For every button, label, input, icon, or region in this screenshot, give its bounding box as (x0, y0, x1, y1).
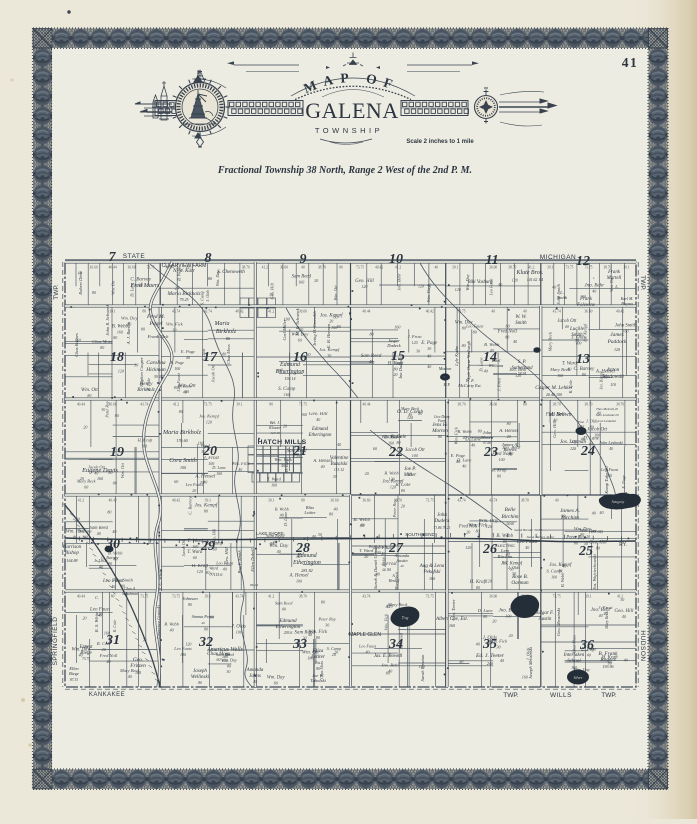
svg-text:LAKE SHORE: LAKE SHORE (256, 531, 284, 536)
svg-text:79.25: 79.25 (180, 297, 189, 302)
svg-text:T. Ward: T. Ward (267, 477, 281, 482)
svg-text:40.44: 40.44 (109, 266, 117, 270)
svg-text:20: 20 (283, 423, 287, 428)
svg-text:Birchim: Birchim (561, 515, 579, 521)
svg-text:39.1: 39.1 (617, 499, 623, 503)
svg-text:38.70: 38.70 (242, 266, 250, 270)
svg-text:James A.: James A. (560, 508, 580, 514)
svg-text:80: 80 (329, 511, 333, 516)
svg-text:36.60: 36.60 (299, 310, 307, 314)
svg-text:A.: A. (391, 574, 395, 578)
svg-text:20: 20 (83, 425, 87, 430)
svg-text:Fractional Township 38 North,: Fractional Township 38 North, Range 2 We… (217, 165, 472, 176)
svg-text:60: 60 (217, 657, 221, 662)
svg-text:39.1: 39.1 (205, 595, 211, 599)
svg-text:Birchim: Birchim (498, 554, 513, 559)
svg-text:W. W.: W. W. (515, 315, 526, 320)
svg-text:100: 100 (505, 613, 511, 618)
svg-text:40: 40 (307, 352, 311, 357)
svg-text:Lawrence Gorecki: Lawrence Gorecki (156, 604, 161, 639)
svg-text:John Smith: John Smith (113, 578, 134, 583)
svg-text:35: 35 (482, 637, 497, 652)
svg-text:160: 160 (429, 576, 435, 581)
svg-text:80: 80 (274, 681, 278, 686)
svg-text:40: 40 (434, 266, 438, 270)
svg-text:40: 40 (600, 510, 604, 515)
svg-text:80: 80 (476, 585, 480, 590)
svg-text:40.44: 40.44 (362, 310, 370, 314)
svg-text:A. J. Barnes: A. J. Barnes (126, 322, 131, 346)
svg-text:40: 40 (76, 517, 80, 522)
svg-text:70: 70 (575, 338, 579, 343)
svg-text:120: 120 (418, 283, 424, 288)
svg-text:B. Webb: B. Webb (560, 572, 565, 587)
svg-text:39.1: 39.1 (623, 266, 629, 270)
svg-text:20: 20 (394, 372, 398, 377)
svg-text:38.70: 38.70 (318, 266, 326, 270)
svg-text:Sarah & Daniel Grimes: Sarah & Daniel Grimes (373, 545, 378, 589)
svg-text:Frank: Frank (607, 270, 621, 275)
svg-text:120: 120 (570, 446, 576, 451)
svg-text:39.1: 39.1 (547, 266, 553, 270)
svg-text:40: 40 (107, 659, 111, 664)
svg-text:20: 20 (401, 504, 405, 509)
svg-text:20: 20 (99, 564, 103, 569)
svg-text:9: 9 (300, 252, 307, 267)
svg-text:120: 120 (185, 642, 191, 647)
svg-text:18: 18 (110, 350, 124, 365)
svg-text:Austin: Austin (395, 558, 408, 563)
svg-text:36.60: 36.60 (90, 266, 98, 270)
svg-text:Joseph: Joseph (193, 669, 207, 674)
svg-text:240: 240 (487, 661, 494, 666)
svg-text:73.75: 73.75 (457, 310, 465, 314)
svg-text:100: 100 (236, 630, 242, 635)
svg-text:41.2: 41.2 (78, 499, 84, 503)
svg-text:40: 40 (562, 564, 566, 569)
svg-text:20: 20 (175, 286, 179, 291)
svg-text:Oarman: Oarman (511, 580, 529, 586)
svg-text:73.75: 73.75 (553, 595, 561, 599)
svg-text:TWP.: TWP. (53, 284, 60, 300)
svg-text:S. P.: S. P. (518, 360, 526, 365)
svg-text:73.75: 73.75 (299, 403, 307, 407)
svg-text:80: 80 (87, 393, 91, 398)
svg-text:293.6: 293.6 (284, 631, 293, 635)
svg-text:C. Barney: C. Barney (101, 555, 118, 560)
svg-text:R. S. White: R. S. White (94, 612, 99, 633)
svg-text:Wm. Day: Wm. Day (426, 286, 431, 303)
svg-text:CLEARVIEW FARM: CLEARVIEW FARM (162, 263, 207, 269)
svg-text:39.1: 39.1 (236, 403, 242, 407)
svg-text:B. Webb: B. Webb (384, 471, 399, 476)
svg-text:176.60: 176.60 (176, 438, 188, 443)
svg-text:Geo. Mrozinski: Geo. Mrozinski (556, 607, 561, 636)
svg-text:38.70: 38.70 (603, 266, 611, 270)
svg-text:117: 117 (502, 561, 507, 565)
svg-text:Robert Dietz: Robert Dietz (78, 271, 83, 296)
svg-text:80: 80 (143, 443, 147, 448)
svg-text:80: 80 (107, 510, 111, 515)
svg-text:41.2: 41.2 (528, 266, 534, 270)
svg-text:80: 80 (321, 600, 325, 605)
svg-text:41.2: 41.2 (268, 310, 274, 314)
svg-text:Sam Reed: Sam Reed (275, 601, 293, 606)
svg-text:80: 80 (113, 480, 117, 485)
svg-text:Biege: Biege (69, 671, 79, 676)
svg-text:80: 80 (394, 367, 398, 372)
svg-text:Joseph Mrozinski: Joseph Mrozinski (528, 646, 533, 679)
svg-text:38.70: 38.70 (553, 403, 561, 407)
svg-text:80: 80 (574, 541, 578, 546)
svg-text:38.70: 38.70 (394, 499, 402, 503)
svg-text:TWP.: TWP. (639, 275, 646, 291)
svg-text:40: 40 (491, 310, 495, 314)
svg-text:Morton: Morton (431, 428, 448, 434)
svg-text:40: 40 (525, 545, 529, 550)
svg-text:Sutherland: Sutherland (511, 366, 533, 371)
svg-text:Rogers: Rogers (599, 657, 615, 663)
svg-text:40.42: 40.42 (375, 266, 383, 270)
svg-text:Kemp Tuholski: Kemp Tuholski (604, 466, 609, 495)
svg-text:43.74: 43.74 (489, 499, 497, 503)
svg-text:Wm. Ott: Wm. Ott (110, 280, 115, 295)
svg-text:20: 20 (492, 619, 496, 624)
svg-text:Wm. Day: Wm. Day (574, 526, 591, 531)
svg-text:38.70: 38.70 (508, 266, 516, 270)
svg-text:Sarah Breuler 39.89: Sarah Breuler 39.89 (514, 528, 542, 532)
svg-text:100: 100 (82, 535, 88, 540)
svg-text:Tuholski: Tuholski (310, 678, 326, 683)
svg-text:36.60: 36.60 (584, 310, 592, 314)
svg-text:Chas Moss: Chas Moss (571, 635, 576, 654)
svg-text:Scale 2 inches to 1 mile: Scale 2 inches to 1 mile (406, 139, 474, 145)
svg-text:60: 60 (373, 446, 377, 451)
svg-text:43.74: 43.74 (457, 499, 465, 503)
svg-text:Letiter: Letiter (303, 510, 316, 515)
svg-text:40.44: 40.44 (362, 403, 370, 407)
svg-text:73.75: 73.75 (356, 266, 364, 270)
svg-text:40: 40 (201, 621, 205, 625)
svg-text:Aug & Lena: Aug & Lena (419, 564, 445, 569)
svg-text:80: 80 (523, 403, 527, 407)
svg-text:80: 80 (370, 332, 374, 337)
svg-text:40: 40 (463, 435, 467, 440)
svg-text:80: 80 (476, 528, 480, 533)
svg-text:M. R. Schwenk: M. R. Schwenk (295, 307, 300, 336)
svg-text:Leo Faust: Leo Faust (173, 646, 192, 651)
svg-text:Thos Metcalf 20: Thos Metcalf 20 (596, 407, 618, 411)
svg-text:40: 40 (599, 613, 603, 618)
svg-text:10: 10 (389, 252, 403, 267)
svg-text:80: 80 (505, 335, 509, 340)
svg-text:160: 160 (271, 483, 277, 488)
svg-text:160: 160 (571, 666, 577, 670)
svg-text:Pagel: Pagel (148, 321, 162, 327)
svg-text:Wm. Day: Wm. Day (121, 315, 137, 320)
svg-text:58.94: 58.94 (518, 372, 527, 376)
svg-text:Maria Birkholz: Maria Birkholz (162, 429, 202, 436)
svg-text:29: 29 (200, 539, 215, 554)
svg-text:Wm. Ott: Wm. Ott (333, 285, 338, 301)
svg-text:100: 100 (180, 465, 186, 470)
svg-text:39.1: 39.1 (585, 595, 591, 599)
svg-text:25: 25 (578, 544, 593, 559)
svg-text:t.: t. (593, 276, 595, 280)
svg-text:Lem: Lem (500, 548, 510, 553)
svg-text:40: 40 (427, 353, 431, 358)
svg-text:Valentine: Valentine (330, 456, 349, 461)
svg-text:120: 120 (512, 278, 518, 283)
svg-text:32: 32 (198, 635, 213, 650)
svg-text:160: 160 (135, 670, 141, 675)
svg-text:43.74: 43.74 (172, 310, 180, 314)
svg-text:160: 160 (117, 330, 123, 335)
svg-text:R. Cole: R. Cole (112, 620, 117, 634)
svg-text:Casper M. Lehker: Casper M. Lehker (535, 385, 574, 391)
svg-text:30: 30 (226, 669, 230, 674)
svg-text:20: 20 (99, 612, 103, 617)
svg-text:D. Lane: D. Lane (477, 608, 493, 613)
svg-text:Fred M.: Fred M. (146, 314, 165, 320)
svg-text:40.42: 40.42 (235, 310, 243, 314)
svg-text:N. W. Karr: N. W. Karr (172, 269, 195, 274)
svg-text:20: 20 (586, 534, 590, 539)
svg-text:40: 40 (203, 480, 207, 485)
svg-text:73.75: 73.75 (565, 266, 573, 270)
svg-text:40: 40 (321, 464, 325, 469)
svg-text:30: 30 (416, 349, 420, 354)
svg-text:Kloster: Kloster (268, 425, 281, 430)
svg-text:16: 16 (293, 350, 307, 365)
svg-text:Buzalski: Buzalski (331, 462, 349, 467)
svg-text:31: 31 (105, 633, 120, 648)
svg-text:40.44: 40.44 (77, 403, 85, 407)
svg-text:160: 160 (449, 623, 455, 628)
svg-text:120: 120 (206, 419, 212, 424)
svg-text:33: 33 (292, 637, 307, 652)
svg-text:43.74: 43.74 (235, 595, 243, 599)
svg-text:160: 160 (551, 574, 557, 579)
svg-text:Chas A.: Chas A. (124, 587, 136, 591)
svg-text:36.60: 36.60 (280, 266, 288, 270)
svg-text:80: 80 (208, 276, 212, 281)
svg-text:40: 40 (513, 339, 517, 344)
svg-text:86: 86 (226, 336, 230, 341)
svg-text:27: 27 (388, 541, 404, 556)
svg-text:22: 22 (388, 445, 403, 460)
svg-text:GALENA: GALENA (305, 98, 398, 123)
svg-text:Frank: Frank (579, 297, 593, 302)
svg-text:80: 80 (204, 508, 208, 513)
svg-text:39.1: 39.1 (205, 499, 211, 503)
svg-text:Jacob Ott: Jacob Ott (181, 539, 186, 557)
svg-text:80: 80 (269, 403, 273, 407)
svg-text:Johnson: Johnson (182, 596, 198, 601)
svg-text:Chas Moss: Chas Moss (226, 344, 231, 364)
svg-text:Birchim: Birchim (501, 514, 518, 520)
svg-text:40: 40 (97, 531, 101, 536)
svg-text:40: 40 (462, 463, 466, 468)
svg-text:80: 80 (108, 561, 112, 566)
svg-text:38.70: 38.70 (616, 403, 624, 407)
svg-text:80: 80 (316, 635, 320, 640)
svg-text:Farm: Farm (437, 419, 446, 423)
svg-text:39.1: 39.1 (268, 499, 274, 503)
svg-text:40: 40 (498, 282, 502, 287)
svg-text:30: 30 (427, 346, 431, 351)
svg-text:40.42: 40.42 (426, 310, 434, 314)
svg-text:E. B. Hennen: E. B. Hennen (326, 323, 331, 349)
svg-text:20: 20 (202, 444, 217, 459)
svg-text:Fritzen: Fritzen (129, 663, 146, 669)
svg-text:120: 120 (486, 524, 492, 529)
svg-text:Bishop: Bishop (65, 551, 79, 556)
svg-text:Jacob Ott: Jacob Ott (210, 364, 215, 382)
svg-text:60: 60 (174, 479, 178, 484)
svg-text:80: 80 (198, 681, 202, 685)
svg-text:Klute Bros.: Klute Bros. (515, 270, 543, 276)
svg-text:40: 40 (471, 443, 475, 448)
svg-text:120: 120 (455, 287, 461, 292)
svg-text:80: 80 (100, 345, 104, 350)
svg-text:Pekofski: Pekofski (423, 570, 442, 575)
svg-text:20: 20 (334, 649, 338, 654)
svg-text:Mary Beck: Mary Beck (547, 331, 552, 352)
svg-text:120: 120 (118, 368, 124, 373)
svg-text:73.75: 73.75 (204, 403, 212, 407)
svg-text:B. Webb: B. Webb (457, 429, 472, 434)
svg-text:H. Kraft: H. Kraft (469, 578, 487, 585)
svg-text:80: 80 (179, 409, 183, 414)
svg-text:Ben F. Smith: Ben F. Smith (237, 550, 242, 574)
svg-text:80: 80 (596, 546, 600, 551)
svg-text:40: 40 (592, 510, 596, 515)
svg-text:113.12: 113.12 (334, 468, 344, 472)
svg-text:Fred Maers: Fred Maers (129, 282, 160, 289)
svg-text:40: 40 (238, 467, 242, 472)
svg-text:80: 80 (316, 667, 320, 671)
svg-text:40: 40 (579, 427, 583, 432)
svg-text:20: 20 (329, 319, 333, 324)
svg-text:Maxen: Maxen (480, 435, 494, 440)
svg-text:20: 20 (365, 471, 369, 476)
svg-text:Leo Leskoski: Leo Leskoski (597, 419, 616, 423)
svg-text:Simma Pease: Simma Pease (192, 614, 215, 619)
svg-text:80: 80 (497, 473, 501, 478)
svg-text:Amanda: Amanda (246, 668, 264, 673)
svg-text:80: 80 (301, 499, 305, 503)
svg-text:193.96: 193.96 (603, 664, 614, 669)
svg-text:80: 80 (188, 603, 192, 607)
svg-text:80: 80 (396, 608, 400, 613)
svg-text:Hickman: Hickman (145, 367, 166, 373)
svg-text:36.60: 36.60 (521, 595, 529, 599)
svg-text:80: 80 (567, 366, 571, 371)
svg-text:Austin: Austin (538, 617, 552, 622)
svg-text:80: 80 (473, 330, 477, 335)
svg-text:SPRINGFIELD: SPRINGFIELD (52, 617, 59, 666)
svg-text:120: 120 (614, 347, 620, 352)
svg-text:40: 40 (223, 567, 227, 572)
svg-text:40: 40 (400, 564, 404, 568)
svg-text:160: 160 (284, 392, 290, 397)
svg-text:80: 80 (73, 535, 77, 540)
svg-text:7: 7 (109, 250, 117, 265)
svg-text:41.2: 41.2 (617, 595, 623, 599)
svg-text:80: 80 (580, 673, 584, 678)
svg-text:John Leskoski: John Leskoski (599, 440, 623, 445)
svg-text:80: 80 (92, 290, 96, 295)
svg-text:87.33: 87.33 (70, 678, 78, 682)
svg-text:L.: L. (614, 284, 618, 289)
svg-text:12: 12 (576, 254, 590, 269)
svg-text:80: 80 (222, 351, 226, 356)
svg-text:40: 40 (282, 607, 286, 612)
svg-text:40: 40 (553, 418, 557, 423)
svg-text:80: 80 (227, 664, 231, 669)
svg-text:141.62 1/4: 141.62 1/4 (527, 278, 543, 282)
svg-text:30: 30 (497, 645, 501, 650)
svg-text:160: 160 (222, 654, 228, 659)
svg-text:40: 40 (555, 499, 559, 503)
svg-text:Eugene Davis: Eugene Davis (81, 467, 118, 474)
svg-text:Wm. Ott: Wm. Ott (401, 609, 406, 623)
svg-text:40: 40 (312, 534, 316, 539)
svg-text:STATE: STATE (123, 253, 146, 260)
svg-text:40: 40 (592, 289, 596, 294)
svg-text:E. Page: E. Page (169, 360, 184, 365)
svg-text:40: 40 (609, 447, 613, 451)
svg-text:H. Kraft: H. Kraft (137, 437, 154, 442)
svg-text:Hensel: Hensel (388, 579, 400, 583)
svg-text:80: 80 (438, 435, 442, 439)
svg-text:120: 120 (407, 415, 413, 420)
svg-text:Carolina: Carolina (146, 360, 166, 366)
svg-text:160: 160 (557, 373, 563, 378)
svg-text:28: 28 (295, 541, 310, 556)
svg-text:40: 40 (183, 390, 187, 395)
svg-text:40: 40 (369, 359, 373, 364)
svg-text:13: 13 (576, 352, 590, 367)
svg-text:Belle: Belle (504, 507, 516, 513)
svg-text:40: 40 (366, 650, 370, 655)
svg-text:ELECTRIC: ELECTRIC (495, 543, 515, 548)
svg-text:WILLS: WILLS (550, 692, 572, 699)
svg-text:115.6: 115.6 (214, 572, 223, 577)
svg-text:80: 80 (506, 323, 510, 328)
svg-text:Smith: Smith (515, 321, 527, 326)
svg-text:73.75: 73.75 (426, 499, 434, 503)
svg-text:Fred Noll: Fred Noll (99, 653, 118, 658)
svg-text:Etherington: Etherington (292, 560, 321, 566)
svg-text:60: 60 (84, 484, 88, 489)
svg-text:40: 40 (316, 417, 320, 422)
svg-text:36.60: 36.60 (362, 499, 370, 503)
svg-text:Mary Beck: Mary Beck (76, 478, 96, 483)
svg-text:40: 40 (253, 680, 257, 684)
svg-text:Maria: Maria (214, 321, 230, 327)
svg-text:30: 30 (105, 537, 120, 552)
svg-text:Jos. Kempf: Jos. Kempf (320, 312, 344, 319)
svg-text:80: 80 (462, 325, 466, 330)
svg-text:(187.04): (187.04) (589, 529, 603, 534)
svg-text:60: 60 (298, 337, 302, 342)
svg-text:TWP.: TWP. (601, 692, 617, 699)
svg-text:30: 30 (143, 638, 147, 643)
svg-text:20: 20 (466, 530, 470, 535)
svg-text:30: 30 (325, 622, 329, 627)
